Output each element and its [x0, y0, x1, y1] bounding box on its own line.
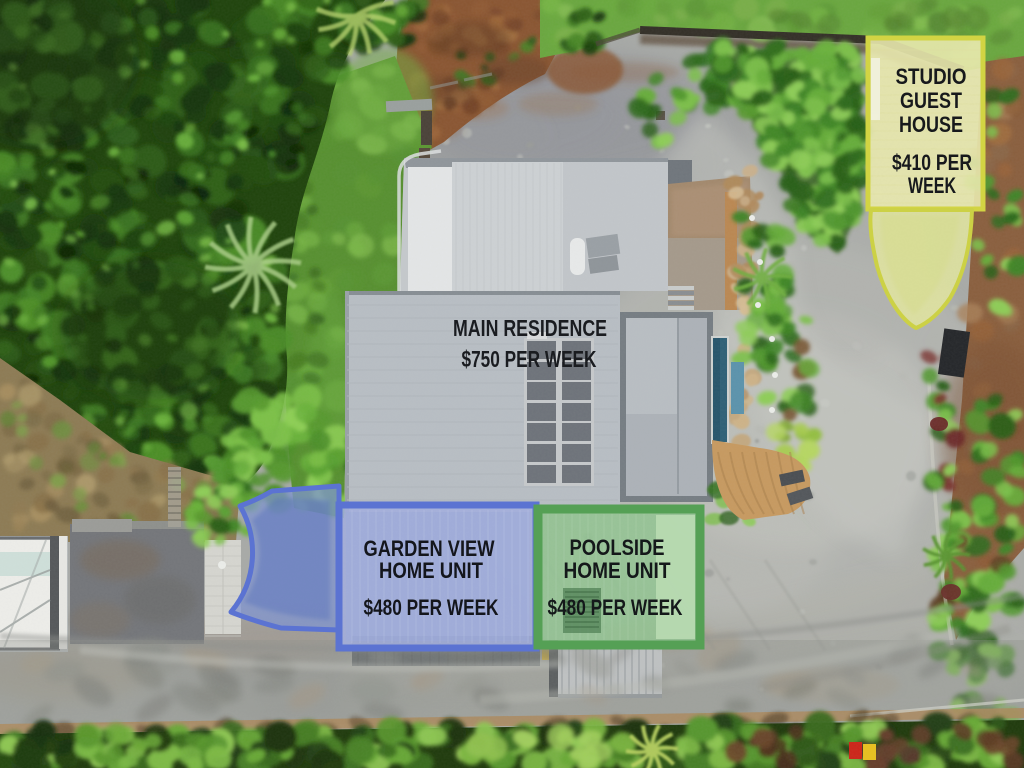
svg-text:MAIN RESIDENCE: MAIN RESIDENCE [453, 315, 607, 341]
svg-text:$750 PER WEEK: $750 PER WEEK [462, 346, 597, 372]
svg-text:WEEK: WEEK [908, 173, 956, 198]
svg-text:$410 PER: $410 PER [892, 150, 972, 175]
svg-text:GUEST: GUEST [900, 88, 962, 113]
svg-text:HOUSE: HOUSE [899, 112, 963, 137]
svg-text:STUDIO: STUDIO [896, 64, 967, 89]
svg-text:POOLSIDE: POOLSIDE [570, 535, 665, 560]
svg-text:$480 PER WEEK: $480 PER WEEK [548, 595, 683, 620]
svg-text:$480 PER WEEK: $480 PER WEEK [364, 595, 499, 620]
svg-text:HOME UNIT: HOME UNIT [564, 558, 671, 583]
svg-text:HOME UNIT: HOME UNIT [379, 558, 483, 583]
